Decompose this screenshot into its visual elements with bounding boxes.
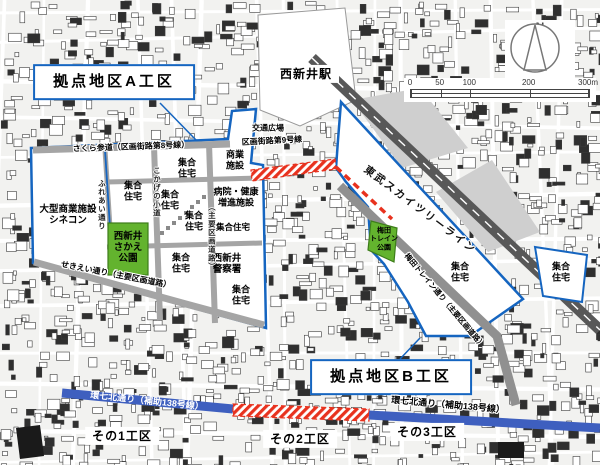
label-sub-district-3: その3工区 — [390, 423, 464, 441]
scale-bar-rule — [410, 89, 590, 98]
scale-tick-label: 50 — [435, 78, 444, 87]
label-housing-9: 集合 住宅 — [552, 261, 570, 282]
label-road-komichi: こかげの小道 — [152, 167, 161, 218]
label-road-kannana-left: 環七北通り（補助138号線） — [90, 390, 205, 412]
label-road-shuyo: （主要区画道路） — [207, 203, 216, 271]
label-road-sakura: さくら参道（区画街路第8号線） — [73, 140, 190, 153]
label-housing-1: 集合 住宅 — [178, 157, 196, 178]
label-traffic-plaza: 交通広場 — [252, 123, 284, 132]
scale-tick-label: 0 — [408, 78, 412, 87]
label-station: 西新井駅 — [273, 65, 339, 83]
scale-tick-label: 200 — [522, 78, 535, 87]
label-road-kannana-right: 環七北通り（補助138号線） — [391, 395, 506, 416]
label-housing-8: 集合 住宅 — [451, 261, 469, 282]
label-housing-5: 集合住宅 — [216, 222, 250, 232]
scale-tick-label: 300m — [578, 78, 598, 87]
scale-tick-label: 100 — [463, 78, 476, 87]
label-commercial: 商業 施設 — [226, 149, 244, 170]
label-cinecon: 大型商業施設 シネコン — [39, 204, 96, 226]
label-housing-7: 集合 住宅 — [232, 284, 250, 305]
map-canvas: 拠点地区A工区拠点地区B工区西新井駅その1工区その2工区その3工区さくら参道（区… — [0, 0, 600, 465]
label-road-sekiei: せきえい通り（主要区画道路） — [60, 260, 172, 291]
label-sakae-park: 西新井 さかえ 公園 — [114, 231, 143, 265]
label-sub-district-1: その1工区 — [85, 427, 159, 445]
label-road-train: 梅田トレイン通り（主要区画道路） — [402, 252, 486, 350]
label-road-gai9: 区画街路第9号線 — [242, 135, 303, 148]
label-housing-6: 集合 住宅 — [172, 252, 190, 273]
scale-bar: 050100200300m — [404, 78, 596, 102]
label-housing-4: 集合 住宅 — [185, 210, 203, 231]
label-tobu-skytree-line: 東武スカイツリーライン — [361, 164, 478, 257]
label-train-park: 梅田 トレイン 公園 — [370, 228, 398, 253]
label-housing-3: 集合 住宅 — [161, 189, 179, 210]
label-housing-2: 集合 住宅 — [124, 180, 142, 201]
label-area-a: 拠点地区A工区 — [33, 64, 195, 100]
compass-rose — [505, 20, 565, 76]
label-road-fureai: ふれあい通り — [97, 180, 106, 231]
label-area-b: 拠点地区B工区 — [310, 359, 472, 395]
label-police: 西新井 警察署 — [213, 253, 242, 275]
label-sub-district-2: その2工区 — [263, 430, 337, 448]
scale-bar-ticks: 050100200300m — [404, 78, 596, 89]
label-hospital: 病院・健康 増進施設 — [213, 186, 258, 207]
